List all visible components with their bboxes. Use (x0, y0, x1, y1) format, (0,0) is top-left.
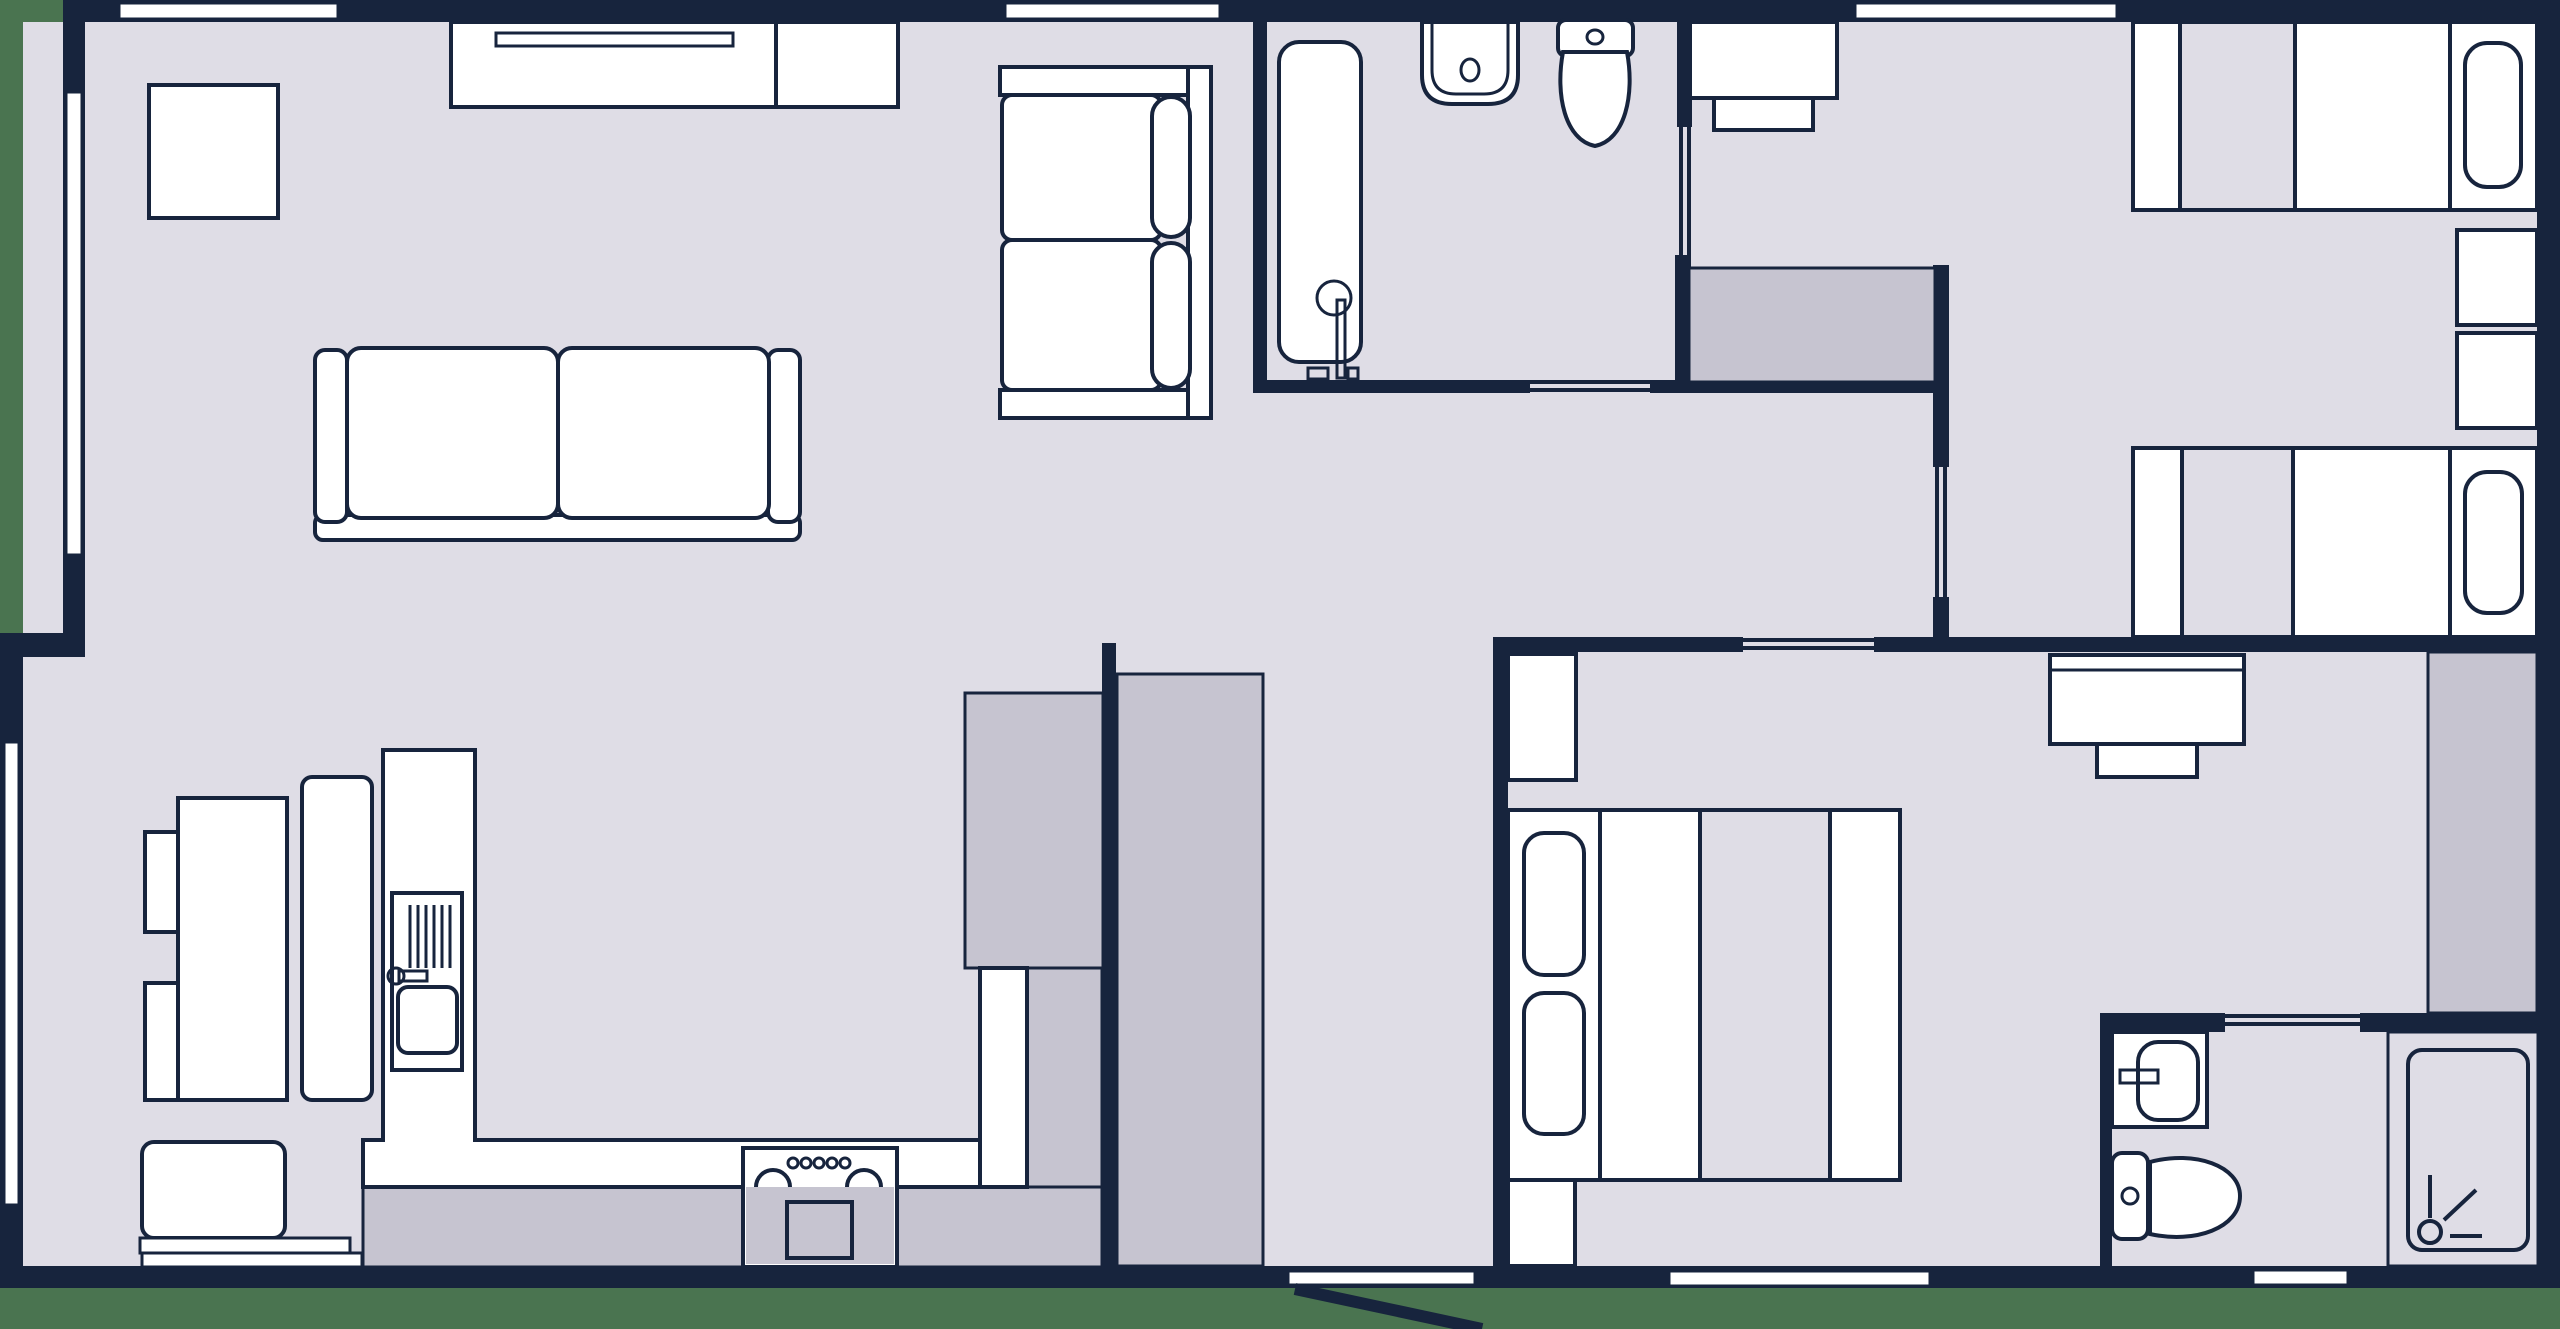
bed1-pillow (2465, 43, 2521, 187)
wall-bathroom-left (1253, 0, 1267, 393)
window-left-lower (4, 742, 19, 1205)
bed1-blanket (2180, 24, 2295, 208)
window-top-bedroom (1855, 3, 2117, 19)
desk-chair-double (2097, 744, 2197, 777)
window-bottom-bedroom (1669, 1271, 1930, 1286)
tall-cabinet (965, 693, 1103, 968)
double-bed-blanket (1700, 812, 1830, 1178)
wall-ensuite-top-a (2100, 1013, 2225, 1032)
window-top-living (119, 3, 338, 19)
ensuite-toilet-tank (2112, 1153, 2148, 1239)
armchair-square (149, 85, 278, 218)
sofa-armrest-right (768, 350, 800, 522)
tv-sideboard (451, 22, 898, 107)
bathtub (1279, 42, 1361, 379)
wardrobe-closet-hall (1117, 674, 1263, 1266)
sofa-three-seat (315, 348, 800, 540)
wardrobe-closet-twin (1689, 268, 1935, 382)
dining-table (178, 798, 287, 1100)
bed2-pillow (2465, 472, 2522, 613)
wall-bathroom-bottom-a (1253, 380, 1530, 393)
dining-chair-2 (145, 983, 178, 1100)
window-bottom-ensuite (2253, 1270, 2348, 1285)
window-left-upper (66, 92, 82, 555)
wardrobe-closet-double (2428, 652, 2537, 1013)
double-bed (1508, 810, 1900, 1180)
wall-bedroom-double-top-a (1493, 637, 1743, 652)
double-bed-pillow-2 (1524, 993, 1584, 1134)
sill-shelf-a (140, 1238, 350, 1253)
wall-bedroom-double-left (1493, 638, 1508, 1288)
wall-left-step (0, 633, 85, 657)
kitchen-sink (388, 893, 462, 1070)
counter-column-white (980, 968, 1027, 1187)
bed2-blanket (2182, 450, 2293, 635)
wall-ensuite-top-b (2360, 1013, 2537, 1032)
loveseat-cushion-bottom (1002, 240, 1161, 390)
loveseat-armrest-top (1000, 67, 1188, 95)
wall-bedroom-double-top-b (1874, 637, 2560, 652)
window-top-bath (1005, 3, 1220, 19)
wash-basin-main (1422, 22, 1518, 104)
loveseat-backpillow-top (1152, 97, 1190, 237)
loveseat-backpillow-bottom (1152, 243, 1190, 388)
desk-twin (1690, 22, 1837, 98)
sofa-armrest-left (315, 350, 347, 522)
nightstand-twin-2 (2457, 333, 2537, 428)
wall-bottom (0, 1266, 2560, 1288)
loveseat-cushion-top (1002, 95, 1161, 240)
kitchen-island (302, 777, 372, 1100)
wash-basin-ensuite (2112, 1032, 2207, 1127)
sofa-cushion-left (347, 348, 558, 518)
stove-oven (743, 1148, 897, 1267)
toilet-ensuite (2112, 1153, 2240, 1239)
single-bed-2 (2133, 448, 2537, 637)
dining-bench (142, 1142, 285, 1238)
wall-top (63, 0, 2560, 22)
nightstand-twin-1 (2457, 230, 2537, 325)
single-bed-1 (2133, 22, 2537, 210)
entry-door-leaf (1288, 1271, 1475, 1285)
nightstand-double (1508, 654, 1576, 780)
loveseat-armrest-bottom (1000, 390, 1188, 418)
counter-lower-run (363, 1187, 1102, 1267)
foot-cabinet (1508, 1180, 1575, 1266)
desk-chair-twin (1714, 98, 1813, 130)
sofa-cushion-right (558, 348, 769, 518)
floor-plan-canvas (0, 0, 2560, 1329)
double-bed-pillow-1 (1524, 833, 1584, 975)
floor-plan-page (0, 0, 2560, 1329)
sill-shelf-b (142, 1253, 362, 1267)
cabinet-column (1027, 968, 1102, 1187)
stove-body (746, 1187, 894, 1264)
dining-chair-1 (145, 832, 178, 932)
